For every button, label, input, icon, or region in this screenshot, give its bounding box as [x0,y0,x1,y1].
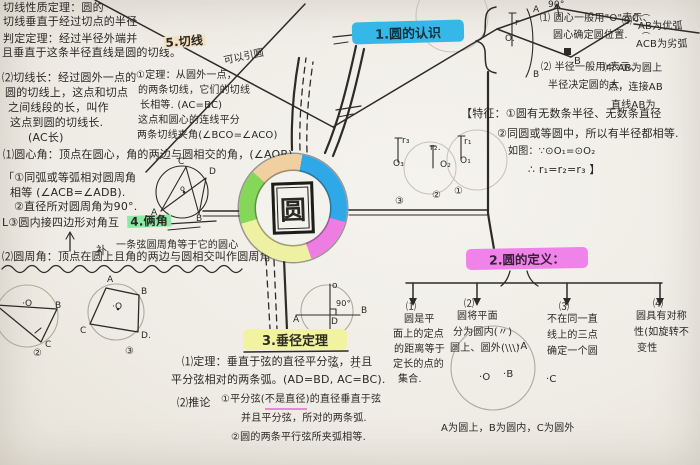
sec2-col1-line3: 的距离等于 [394,345,445,355]
sec1-item4a: ⑷ AB为圆上 [604,64,662,74]
rfig3-o: O₃ [393,160,404,169]
sec1-item3b: ACB为劣弧 [636,40,688,50]
tangent-len-line2: 圆的切线上，这点和切点 [5,87,128,98]
sec2-col1-line5: 集合. [398,375,422,385]
vd-fig-D: D [331,318,338,327]
mindmap-page: 切线性质定理：圆的切线垂直于经过切点的半径判定定理：经过半径外端并且垂直于这条半… [0,0,700,465]
rfig1-o: O₁ [460,157,471,166]
vd-fig-B: B [361,307,367,316]
fig3-label-C: C [80,327,86,336]
sec1-feat3: 如图：∵⊙O₁=⊙O₂ [508,147,595,157]
center-node-ring: 圆 [239,154,347,262]
sec2-fig-A: ·A [517,342,527,352]
fig3-label-A: A [107,276,113,285]
tangent-thm-line1: ①定理：从圆外一点， [136,71,237,81]
rfig2-o: O₂ [440,161,451,170]
tangent-thm-line5: 两条切线夹角(∠BCO=∠ACO) [137,131,278,141]
sec2-col1-num: ⑴ [406,303,416,313]
inscribed-thm-line2: 相等 (∠ACB=∠ADB). [10,187,126,198]
figIA-label-C: C [178,158,184,167]
inscribed-thm-line1: 「①同弧或等弧相对圆周角 [3,172,136,183]
fig3-label-O: ·O [112,303,122,312]
fig3-label-D: D. [141,332,151,341]
vd-line4: 并且平分弦，所对的两条弧. [241,414,367,424]
node-sec3-perpendicular-chord-theorem: 3.垂径定理 [243,329,347,350]
wavy-underline [2,266,242,273]
sec2-col4-num: ⑷ [653,300,663,310]
sec1-item3-num: ⑶ [622,17,632,27]
tangent-len-line5: (AC长) [28,132,64,143]
sec1-feat4: ∴ r₁=r₂=r₃ 】 [528,164,601,175]
rfig1-r: r₁ [464,138,472,147]
tangent-len-line3: 之间线段的长，叫作 [8,102,109,113]
tangent-thm-line3: 长相等. (AC=BC) [140,101,222,111]
tangent-prop-line2: 切线垂直于经过切点的半径 [3,16,137,27]
sec1-feat2: ②同圆或等圆中，所以有半径都相等. [497,128,679,139]
sec1-item3a: AB为优弧 [638,22,683,32]
figIA-label-O: o [180,185,185,193]
sec2-col3-num: ⑶ [559,303,569,313]
sec2-fig-C: ·C [546,375,557,385]
vd-fig-o: o [332,282,338,291]
sec2-col4-line2: 性(如旋转不 [634,328,689,338]
judge-thm-line2: 且垂直于这条半径直线是圆的切线。 [2,47,181,58]
rfig-num1: ① [454,187,463,197]
branch-left [203,211,243,216]
sec2-fig-O: ·O [479,373,490,383]
sec1-fig-O: O. [505,35,515,44]
sec2-col4-line3: 变性 [637,344,657,354]
tangent-thm-line2: 的两条切线，它们的切线 [138,86,250,96]
inscribed-thm-line3: ②直径所对圆周角为90°. [14,201,137,212]
sec2-col3-line1: 不在同一直 [547,315,598,325]
sec2-fig-B: ·B [503,370,513,380]
sec2-col1-line4: 定长的点的 [393,360,444,370]
sec2-col2-line2: 分为圆内(〃) [453,328,512,338]
fig3-num: ③ [125,347,134,357]
branch-sec1 [325,35,364,156]
center-topic-label: 圆 [271,181,315,234]
sec2-tree [406,283,664,306]
sec2-col3-line2: 线上的三点 [547,331,598,341]
tangent-len-line4: 这点到圆的切线长. [10,117,103,128]
sec5-title: 5.切线 [163,34,205,49]
fig3-label-B: B [141,288,147,297]
correction-arrow [66,232,74,251]
center-node-inner: 圆 [256,171,330,245]
sec2-col3-line3: 确定一个圆 [547,347,598,357]
sec1-fig-B: B [533,71,539,80]
fig2-num: ② [33,349,42,359]
sec1-fig-A: A [533,6,539,15]
vd-line3b: ①平分弦(不是直径)的直径垂直于弦 [221,395,381,405]
sec1-item4b: 点，连接AB [608,83,663,93]
rfig3-r: r₃ [402,137,410,146]
sec2-caption: A为圆上，B为圆内，C为圆外 [441,424,574,434]
sec2-col2-line1: 圆将平面 [457,312,498,322]
vd-fig-A: A [293,316,299,325]
sec2-col2-num: ⑵ [464,300,474,310]
node-sec1-circle-knowledge: 1.圆的认识 [352,20,465,45]
kite-angle-label: 90° [548,1,565,10]
vd-line2: 平分弦相对的两条弧。(AD=BD, AC=BC). [171,374,386,385]
rfig-num3: ③ [395,197,404,207]
node-sec2-circle-definition: 2.圆的定义： [466,247,588,270]
figIA-label-D: D [209,168,216,177]
judge-thm-line1: 判定定理：经过半径外端并 [3,33,137,44]
fig-diameter-triangle [0,285,58,347]
vd-line3a: ⑵推论 [177,397,211,408]
sec2-col4-line1: 圆具有对称 [636,312,687,322]
vd-arc2: ⌒ [352,367,360,375]
sec2-col2-line3: 圆上、圆外(\\\) [450,344,520,354]
vd-line5: ②圆的两条平行弦所夹弧相等. [231,433,366,443]
inscribed-thm-line4: L③圆内接四边形对角互 [2,217,119,228]
vd-line1: ⑴定理：垂直于弦的直径平分弦，并且 [182,356,372,367]
fig2-label-O: ·O [22,300,32,309]
sec1-feat1: 【特征：①圆有无数条半径、无数条直径 [461,108,661,119]
fig2-label-B: B [55,302,61,311]
peripheral-angle-def: ⑵圆周角：顶点在圆上且角的两边与圆相交叫作圆周角 [2,251,271,262]
sec2-col1-line1: 圆是平 [404,315,435,325]
central-angle-def: ⑴圆心角：顶点在圆心，角的两边与圆相交的角，(∠AOB). [3,149,296,160]
rfig-num2: ② [432,191,441,201]
sec4-dashes [167,221,216,230]
sec2-col1-line2: 面上的定点 [393,330,444,340]
fig2-label-C: C [45,341,51,350]
sec1-fig-r: r [515,19,519,28]
figIA-label-B: B [196,215,202,224]
figIA-label-A: A [151,209,157,218]
vd-fig-angle: 90° [336,300,351,308]
rfig2-r: r₂. [430,144,441,153]
tangent-prop-line1: 切线性质定理：圆的 [3,2,104,13]
vd-arc1: ⌒ [331,367,339,375]
fig-cyclic-quadrilateral [88,284,144,340]
sec1-item1b: 圆心确定圆位置. [553,31,628,41]
tangent-thm-line4: 这点和圆心的连线平分 [138,116,240,126]
tangent-len-line1: ⑵切线长：经过圆外一点的 [2,72,136,83]
sec4-title: 4.俩角 [127,214,171,228]
sec1-item1a: ⑴ 圆心一般用"O"表示、 [540,14,653,24]
